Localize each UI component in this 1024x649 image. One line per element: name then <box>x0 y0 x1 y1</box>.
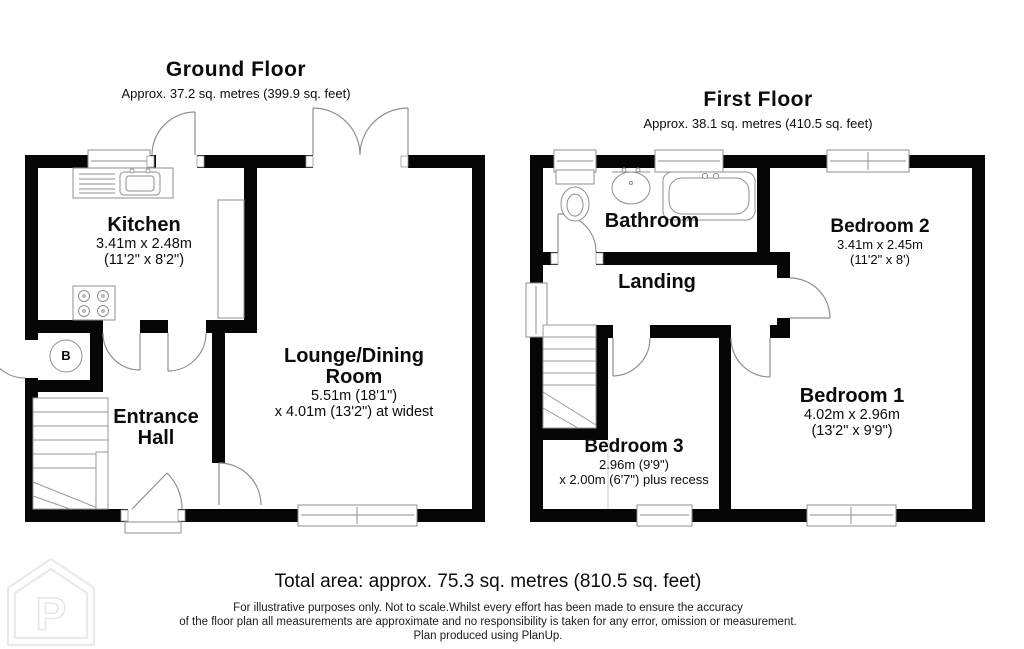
toilet-cistern <box>556 170 594 184</box>
kitchen-dims-metric: 3.41m x 2.48m <box>96 236 192 252</box>
planup-logo: P <box>8 559 94 645</box>
lounge-label: Lounge/Dining Room 5.51m (18'1") x 4.01m… <box>275 346 434 420</box>
bedroom2-dims-imperial: (11'2" x 8') <box>830 252 929 267</box>
first-floor-title: First Floor <box>703 88 812 112</box>
bedroom2-name: Bedroom 2 <box>830 217 929 237</box>
basin <box>612 172 650 204</box>
lounge-dims-line1: 5.51m (18'1") <box>275 388 434 404</box>
bathroom-label: Bathroom <box>605 211 699 232</box>
kitchen-dims-imperial: (11'2" x 8'2") <box>96 252 192 268</box>
lounge-name-line2: Room <box>275 367 434 388</box>
bedroom3-label: Bedroom 3 2.96m (9'9") x 2.00m (6'7") pl… <box>559 437 708 487</box>
bedroom1-label: Bedroom 1 4.02m x 2.96m (13'2" x 9'9") <box>800 386 904 439</box>
disclaimer-line3: Plan produced using PlanUp. <box>414 629 563 643</box>
kitchen-counter <box>218 200 244 318</box>
disclaimer-line2: of the floor plan all measurements are a… <box>179 615 796 629</box>
ground-floor-title: Ground Floor <box>166 58 306 82</box>
first-floor-door-jambs <box>551 253 603 264</box>
boiler-label: B <box>61 348 70 363</box>
lounge-name-line1: Lounge/Dining <box>275 346 434 367</box>
bedroom2-label: Bedroom 2 3.41m x 2.45m (11'2" x 8') <box>830 217 929 267</box>
disclaimer-line1: For illustrative purposes only. Not to s… <box>233 601 743 615</box>
bedroom1-dims-imperial: (13'2" x 9'9") <box>800 423 904 439</box>
ground-floor-subtitle: Approx. 37.2 sq. metres (399.9 sq. feet) <box>121 86 350 101</box>
lounge-dims-line2: x 4.01m (13'2") at widest <box>275 404 434 420</box>
bedroom2-dims-metric: 3.41m x 2.45m <box>830 237 929 252</box>
entrance-hall-line1: Entrance <box>113 407 199 428</box>
ground-floor-door-jambs <box>121 156 408 521</box>
bedroom1-name: Bedroom 1 <box>800 386 904 407</box>
entrance-hall-label: Entrance Hall <box>113 407 199 449</box>
kitchen-label: Kitchen 3.41m x 2.48m (11'2" x 8'2") <box>96 215 192 268</box>
ground-floor-plan <box>0 108 485 533</box>
planup-logo-letter: P <box>36 588 67 640</box>
kitchen-name: Kitchen <box>96 215 192 236</box>
landing-label: Landing <box>618 272 696 293</box>
bedroom1-dims-metric: 4.02m x 2.96m <box>800 407 904 423</box>
ground-floor-stairs <box>33 398 108 509</box>
bedroom3-name: Bedroom 3 <box>559 437 708 457</box>
bedroom3-dims-line1: 2.96m (9'9") <box>559 457 708 472</box>
entrance-hall-line2: Hall <box>113 428 199 449</box>
floorplan-page: P Ground Floor Approx. 37.2 sq. metres (… <box>0 0 1024 649</box>
hob <box>73 286 115 320</box>
first-floor-subtitle: Approx. 38.1 sq. metres (410.5 sq. feet) <box>643 116 872 131</box>
bedroom3-dims-line2: x 2.00m (6'7") plus recess <box>559 472 708 487</box>
total-area-text: Total area: approx. 75.3 sq. metres (810… <box>275 571 702 593</box>
